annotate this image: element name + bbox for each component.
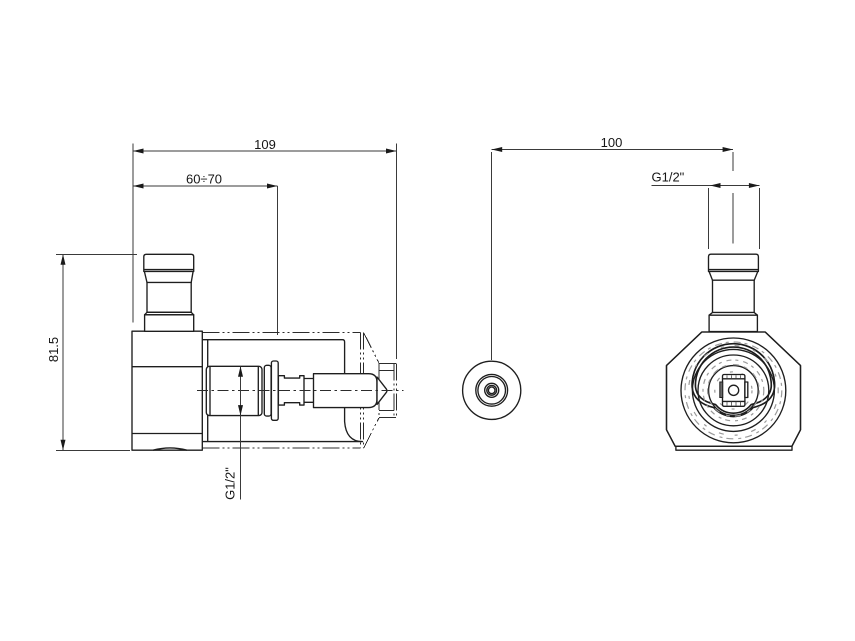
- svg-text:G1/2": G1/2": [652, 170, 685, 185]
- svg-text:100: 100: [601, 135, 623, 150]
- svg-text:109: 109: [254, 137, 276, 152]
- svg-text:G1/2": G1/2": [223, 467, 238, 500]
- svg-text:60÷70: 60÷70: [186, 172, 222, 187]
- svg-text:81.5: 81.5: [46, 337, 61, 362]
